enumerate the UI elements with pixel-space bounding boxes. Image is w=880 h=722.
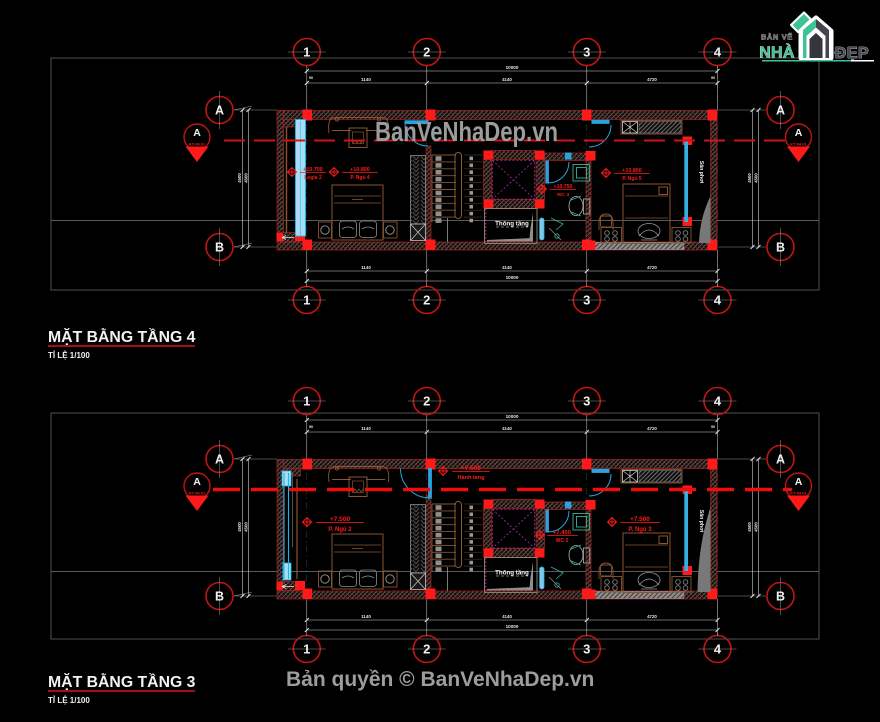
svg-text:TỈ LỆ 1/100: TỈ LỆ 1/100 [48,351,90,360]
svg-text:4720: 4720 [647,614,657,619]
svg-text:4140: 4140 [502,614,512,619]
svg-text:1: 1 [303,642,310,657]
svg-text:4500: 4500 [754,173,759,183]
svg-text:B: B [776,590,785,604]
svg-text:Sân phơi: Sân phơi [698,510,704,533]
svg-text:+10.800: +10.800 [622,168,642,174]
svg-text:4: 4 [714,293,722,308]
svg-text:2: 2 [423,394,430,409]
svg-text:4140: 4140 [502,265,512,270]
svg-text:4500: 4500 [237,173,242,183]
svg-text:90: 90 [711,76,715,80]
svg-text:P. Ngủ 5: P. Ngủ 5 [622,176,642,182]
svg-text:BẢN VẼ: BẢN VẼ [761,33,793,42]
svg-text:4500: 4500 [754,522,759,532]
svg-text:Logia 2: Logia 2 [304,175,322,181]
svg-text:1: 1 [303,293,310,308]
svg-text:+7.500: +7.500 [330,516,351,523]
svg-text:90: 90 [309,76,313,80]
svg-text:4140: 4140 [502,426,512,431]
svg-text:ĐẸP: ĐẸP [835,45,869,62]
svg-text:+10.700: +10.700 [303,167,323,173]
svg-text:+7.500: +7.500 [461,465,481,472]
svg-text:90: 90 [309,425,313,429]
svg-text:4500: 4500 [237,522,242,532]
svg-text:A: A [193,476,201,488]
svg-text:10000: 10000 [506,65,519,70]
svg-text:3: 3 [583,394,590,409]
svg-text:1140: 1140 [361,265,371,270]
svg-text:BanVeNhaDep.vn: BanVeNhaDep.vn [375,116,558,147]
svg-text:3: 3 [583,45,590,60]
svg-text:10000: 10000 [506,275,519,280]
svg-text:1: 1 [303,394,310,409]
svg-text:Hành lang: Hành lang [457,475,485,481]
svg-text:10000: 10000 [506,624,519,629]
svg-text:KT-04 01: KT-04 01 [790,491,807,496]
svg-text:1140: 1140 [361,77,371,82]
svg-text:3: 3 [583,293,590,308]
svg-text:+7.500: +7.500 [630,516,650,523]
svg-text:NHÀ: NHÀ [759,43,795,62]
svg-text:3: 3 [583,642,590,657]
svg-text:+10.750: +10.750 [554,184,573,190]
svg-text:A: A [776,104,785,118]
svg-text:Thông tầng: Thông tầng [495,221,529,228]
svg-text:A: A [215,453,224,467]
svg-text:4720: 4720 [647,77,657,82]
svg-text:4500: 4500 [244,522,249,532]
svg-text:Thông tầng: Thông tầng [495,570,529,577]
svg-text:A: A [776,453,785,467]
svg-text:B: B [215,241,224,255]
svg-text:4720: 4720 [647,265,657,270]
svg-text:Bản quyền © BanVeNhaDep.vn: Bản quyền © BanVeNhaDep.vn [286,668,594,691]
svg-text:B: B [776,241,785,255]
svg-text:MẶT BẰNG TẦNG 3: MẶT BẰNG TẦNG 3 [48,672,196,691]
svg-text:4500: 4500 [747,173,752,183]
svg-text:Sân phơi: Sân phơi [698,161,704,184]
svg-text:A: A [795,476,803,488]
svg-text:2: 2 [423,45,430,60]
svg-text:KT-04 01: KT-04 01 [189,491,206,496]
svg-text:TỈ LỆ 1/100: TỈ LỆ 1/100 [48,696,90,705]
svg-text:1: 1 [303,45,310,60]
svg-text:P. Ngủ 4: P. Ngủ 4 [350,175,370,181]
svg-text:A: A [215,104,224,118]
svg-text:4: 4 [714,642,722,657]
svg-text:P. Ngủ 3: P. Ngủ 3 [628,527,652,533]
svg-text:10000: 10000 [506,414,519,419]
svg-text:4140: 4140 [502,77,512,82]
svg-text:P. Ngủ 2: P. Ngủ 2 [328,527,352,533]
svg-text:WC 2: WC 2 [556,538,569,544]
svg-text:1140: 1140 [361,614,371,619]
svg-text:90: 90 [711,425,715,429]
svg-text:A: A [795,127,803,139]
svg-text:4: 4 [714,45,722,60]
svg-text:4: 4 [714,394,722,409]
svg-text:4500: 4500 [244,173,249,183]
svg-text:A: A [193,127,201,139]
svg-text:4500: 4500 [747,522,752,532]
svg-text:B: B [215,590,224,604]
svg-text:MẶT BẰNG TẦNG 4: MẶT BẰNG TẦNG 4 [48,327,196,346]
svg-text:1140: 1140 [361,426,371,431]
svg-text:KT-04 01: KT-04 01 [790,142,807,147]
svg-text:2: 2 [423,642,430,657]
svg-text:2: 2 [423,293,430,308]
svg-text:WC 4: WC 4 [557,192,569,198]
svg-text:+10.800: +10.800 [350,167,370,173]
svg-text:4720: 4720 [647,426,657,431]
svg-text:KT-04 01: KT-04 01 [189,142,206,147]
